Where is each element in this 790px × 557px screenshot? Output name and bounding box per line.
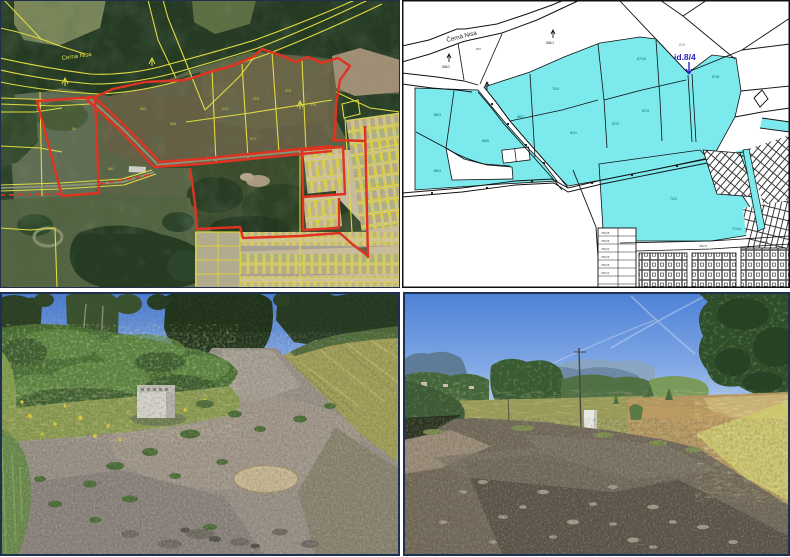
svg-text:87/10: 87/10 xyxy=(637,57,646,61)
svg-text:7/24: 7/24 xyxy=(552,87,559,91)
svg-text:87/8: 87/8 xyxy=(712,75,719,79)
svg-text:782/28: 782/28 xyxy=(601,231,610,235)
svg-text:782/12: 782/12 xyxy=(601,271,610,275)
svg-text:868/2: 868/2 xyxy=(442,65,450,69)
svg-text:87/3: 87/3 xyxy=(642,109,649,113)
svg-text:6/31: 6/31 xyxy=(570,131,577,135)
svg-text:86/3: 86/3 xyxy=(434,113,441,117)
svg-text:86/7: 86/7 xyxy=(517,115,524,119)
svg-text:86/6: 86/6 xyxy=(482,139,489,143)
svg-text:782/47: 782/47 xyxy=(699,244,708,248)
svg-text:782/15: 782/15 xyxy=(601,263,610,267)
svg-text:id.8/4: id.8/4 xyxy=(674,52,696,62)
svg-text:7/144: 7/144 xyxy=(732,227,741,231)
svg-text:782/26: 782/26 xyxy=(601,239,610,243)
svg-text:868/1: 868/1 xyxy=(546,41,554,45)
svg-text:86/4: 86/4 xyxy=(434,169,441,173)
svg-text:782/13: 782/13 xyxy=(760,240,769,244)
svg-text:7/22: 7/22 xyxy=(670,197,677,201)
svg-text:866: 866 xyxy=(476,47,481,51)
svg-text:87/4: 87/4 xyxy=(679,43,685,47)
svg-text:782/19: 782/19 xyxy=(601,255,610,259)
svg-text:782/22: 782/22 xyxy=(601,247,610,251)
svg-text:87/2: 87/2 xyxy=(612,122,619,126)
